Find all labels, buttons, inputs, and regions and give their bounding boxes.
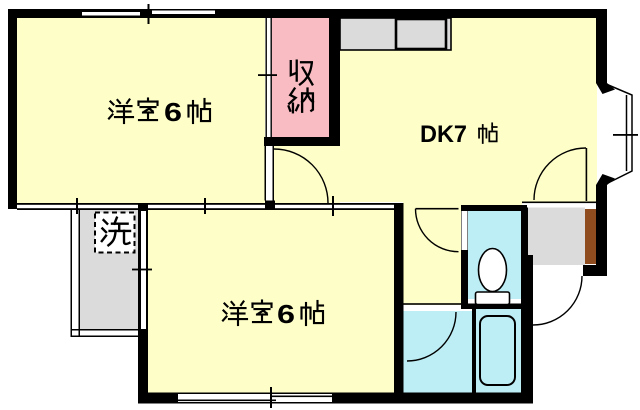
svg-text:DK7: DK7 — [420, 121, 467, 148]
svg-text:6: 6 — [277, 299, 295, 329]
svg-text:6: 6 — [164, 97, 182, 127]
